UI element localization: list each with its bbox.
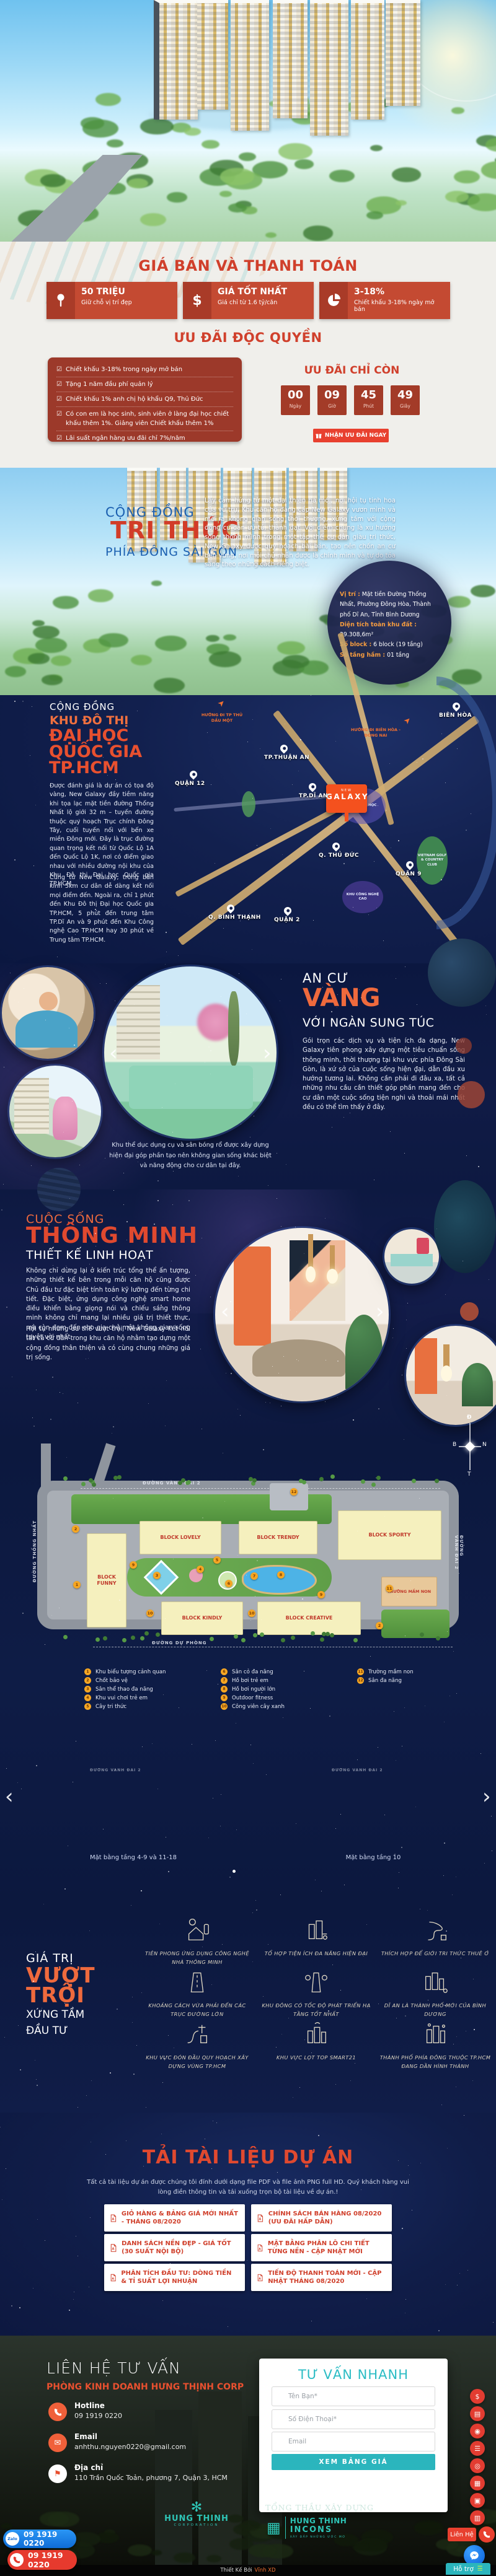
map-area: VIETNAM GOLF & COUNTRY CLUB xyxy=(417,836,448,885)
legend-item: 4Khu vui chơi trẻ em xyxy=(84,1694,148,1701)
legend-item: 3Sân thể thao đa năng xyxy=(84,1686,153,1693)
phone-icon xyxy=(483,2531,490,2538)
map-golf-patch xyxy=(242,791,255,817)
block-trendy: BLOCK TRENDY xyxy=(239,1521,317,1554)
location-paragraph-1: Được đánh giá là dự án có tọa độ vàng, N… xyxy=(50,782,154,889)
legend-number: 1 xyxy=(84,1668,91,1675)
road-label: ĐƯỜNG VÀNH ĐAI 2 xyxy=(454,1535,464,1572)
project-info-list: Vị trí : Mặt tiền Đường Thống Nhất, Phườ… xyxy=(340,590,443,660)
tower xyxy=(310,0,348,136)
legend-item: 11Trường mầm non xyxy=(357,1668,414,1675)
claim-offer-label: NHẬN ƯU ĐÃI NGAY xyxy=(325,432,386,439)
value-caption: TIÊN PHONG ỨNG DỤNG CÔNG NGHỆ NHÀ THÔNG … xyxy=(140,1949,254,1966)
highway-icon xyxy=(183,1968,211,1995)
plan-marker: 2 xyxy=(376,1622,383,1629)
check-icon: ☑ xyxy=(56,410,62,428)
email-input[interactable] xyxy=(272,2432,435,2451)
value-caption: TỔ HỢP TIỆN ÍCH ĐA NĂNG HIỆN ĐẠI xyxy=(259,1949,373,1958)
contact-float-button[interactable]: Liên Hệ xyxy=(448,2528,476,2541)
plan-marker: 9 xyxy=(130,1561,137,1569)
living-section: ‹ › AN CƯ VÀNG VỚI NGÀN SUNG TÚC Gói trọ… xyxy=(0,963,496,1189)
carousel-next-button[interactable]: › xyxy=(376,1302,384,1321)
plan-marker: 7 xyxy=(250,1572,258,1580)
legend-number: 7 xyxy=(221,1677,228,1684)
smart-heading-3: THIẾT KẾ LINH HOẠT xyxy=(26,1248,153,1262)
amenity-complex-icon xyxy=(302,1916,330,1943)
messenger-icon xyxy=(469,2550,480,2561)
block-creative: BLOCK CREATIVE xyxy=(257,1601,361,1635)
value-caption: KHU VỰC ĐÓN ĐẦU QUY HOẠCH XÂY DỰNG VÙNG … xyxy=(140,2053,254,2070)
svg-text:A: A xyxy=(259,2247,261,2251)
planet-decoration xyxy=(456,1038,472,1054)
email-label: Email xyxy=(74,2432,186,2441)
map-pin-icon xyxy=(308,782,318,792)
legend-label: Khu biểu tượng cảnh quan xyxy=(95,1669,166,1675)
legend-item: 12Sân đa năng xyxy=(357,1677,402,1684)
value-heading-2b: TRỘI xyxy=(26,1985,85,2007)
carousel-dot[interactable] xyxy=(232,1870,236,1873)
tower xyxy=(197,0,228,110)
info-value: 29.308,6m² xyxy=(340,631,373,638)
footer-author-link[interactable]: Vĩnh XD xyxy=(255,2567,276,2574)
svg-text:A: A xyxy=(259,2217,261,2221)
landing-page: GIÁ BÁN VÀ THANH TOÁN 50 TRIỆU Giữ chỗ v… xyxy=(0,0,496,2576)
document-download-button[interactable]: ACHÍNH SÁCH BÁN HÀNG 08/2020 (ƯU ĐÃI HẤP… xyxy=(251,2204,392,2232)
carousel-prev-button[interactable]: ‹ xyxy=(221,1302,229,1321)
hungthinh-incons-logo: ▦ HUNG THINH INCONS XÂY ĐẮP NHỮNG ƯỚC MƠ xyxy=(267,2517,347,2539)
planet-decoration xyxy=(434,1180,496,1273)
legend-label: Sân cỏ đa năng xyxy=(232,1669,273,1675)
map-marker: TP.THUẬN AN xyxy=(264,755,309,761)
legend-number: 5 xyxy=(84,1703,91,1710)
document-download-button[interactable]: ATIẾN ĐỘ THANH TOÁN MỚI - CẬP NHẬT THÁNG… xyxy=(251,2264,392,2291)
countdown-label: Giây xyxy=(391,403,420,409)
value-item: DĨ AN LÀ THÀNH PHỐ MỚI CỦA BÌNH DƯƠNG xyxy=(378,1968,492,2018)
address-value: 110 Trần Quốc Toản, phương 7, Quận 3, HC… xyxy=(74,2474,228,2482)
map-marker: BIÊN HÒA xyxy=(439,712,472,719)
footer-credit: Thiết Kế Bởi xyxy=(220,2567,252,2574)
document-label: GIỎ HÀNG & BẢNG GIÁ MỚI NHẤT - THÁNG 08/… xyxy=(122,2210,239,2227)
legend-number: 4 xyxy=(84,1694,91,1701)
check-icon: ☑ xyxy=(56,365,62,374)
plan-dashed-line xyxy=(93,1647,453,1647)
value-item: TỔ HỢP TIỆN ÍCH ĐA NĂNG HIỆN ĐẠI xyxy=(259,1916,373,1958)
card-title: 50 TRIỆU xyxy=(81,287,132,297)
floorplan-caption: Mặt bằng tầng 10 xyxy=(274,1854,472,1861)
amenity-photo-circle xyxy=(104,966,277,1139)
call-button[interactable]: 09 1919 0220 xyxy=(7,2550,77,2570)
pdf-icon: A xyxy=(110,2212,117,2224)
value-caption: DĨ AN LÀ THÀNH PHỐ MỚI CỦA BÌNH DƯƠNG xyxy=(378,2001,492,2018)
tower xyxy=(386,0,420,106)
plan-marker: 11 xyxy=(386,1585,393,1592)
road-label: ĐƯỜNG VÀNH ĐAI 2 xyxy=(143,1481,201,1486)
legend-number: 8 xyxy=(221,1686,228,1693)
legend-number: 2 xyxy=(84,1677,91,1684)
tower xyxy=(231,0,269,131)
legend-label: Outdoor fitness xyxy=(232,1695,273,1701)
map-direction: HƯỚNG ĐI TP THỦ DẦU MỘT xyxy=(196,712,248,724)
card-title: 3-18% xyxy=(354,287,444,297)
map-pin-icon xyxy=(279,743,290,754)
offer-item: Chiết khấu 3-18% trong ngày mở bán xyxy=(66,365,182,374)
info-value: 01 tầng xyxy=(387,652,409,659)
masterplan-map: ĐƯỜNG VÀNH ĐAI 2 ĐƯỜNG THỐNG NHẤT ĐƯỜNG … xyxy=(19,1450,477,1654)
legend-number: 6 xyxy=(221,1668,228,1675)
value-section: GIÁ TRỊ VƯỢT TRỘI XỨNG TẦM ĐẦU TƯ TIÊN P… xyxy=(0,1908,496,2113)
kitchen-photo-circle xyxy=(384,1229,439,1284)
offer-item: Lãi suất ngân hàng ưu đãi chỉ 7%/năm xyxy=(66,434,185,443)
hotline-value[interactable]: 09 1919 0220 xyxy=(74,2412,122,2420)
landscape-photo-circle xyxy=(9,1066,101,1157)
pricing-card: 50 TRIỆU Giữ chỗ vị trí đẹp xyxy=(46,282,177,319)
legend-label: Trường mầm non xyxy=(368,1669,414,1675)
countdown-label: Phút xyxy=(354,403,383,409)
block-sporty: BLOCK SPORTY xyxy=(338,1510,441,1560)
gift-icon xyxy=(316,432,322,439)
documents-section: TẢI TÀI LIỆU DỰ ÁN Tất cả tài liệu dự án… xyxy=(0,2113,496,2336)
logo-text: INCONS xyxy=(290,2525,347,2534)
phone-icon xyxy=(48,2403,67,2421)
price-icon[interactable]: $ xyxy=(470,2389,485,2404)
value-item: KHOẢNG CÁCH VỪA PHẢI ĐẾN CÁC TRỤC ĐƯỜNG … xyxy=(140,1968,254,2018)
countdown-days: 00 Ngày xyxy=(281,385,310,415)
smart-home-icon xyxy=(183,1916,211,1943)
road-label: ĐƯỜNG THỐNG NHẤT xyxy=(32,1520,37,1582)
road-label: ĐƯỜNG DỰ PHÒNG xyxy=(152,1641,207,1645)
interior-photo-circle xyxy=(215,1228,389,1401)
document-download-button[interactable]: ADANH SÁCH NỀN ĐẸP - GIÁ TỐT (30 SUẤT NỘ… xyxy=(104,2234,245,2261)
value-item: KHU ĐÔNG CÓ TỐC ĐỘ PHÁT TRIỂN HẠ TẦNG TỐ… xyxy=(259,1968,373,2018)
dining-photo-circle xyxy=(406,1326,496,1425)
plan-marker: 4 xyxy=(197,1566,204,1573)
logo-subtext: CORPORATION xyxy=(162,2523,231,2527)
offer-item: Chiết khấu 1% anh chị hộ khẩu Q9, Thủ Đứ… xyxy=(66,395,203,404)
pricing-title: GIÁ BÁN VÀ THANH TOÁN xyxy=(0,257,496,274)
family-photo-circle xyxy=(2,967,94,1059)
plan-plaza xyxy=(270,1483,308,1510)
map-pin-icon xyxy=(283,906,293,916)
new-city-icon xyxy=(421,1968,449,1995)
book-icon[interactable]: ▤ xyxy=(470,2406,485,2421)
form-title: TƯ VẤN NHANH xyxy=(259,2367,448,2382)
plan-marker: 10 xyxy=(146,1610,154,1617)
smart21-icon xyxy=(302,2020,330,2047)
plan-road xyxy=(41,1444,51,1487)
masterplan-section: Đ N B T ĐƯỜNG VÀNH ĐAI 2 ĐƯỜNG THỐNG NHẤ… xyxy=(0,1444,496,1908)
community-paragraph: Lấy cảm hứng từ một đại thiên hà mới, nơ… xyxy=(205,497,396,570)
pdf-icon: A xyxy=(257,2212,263,2224)
flower-logo-icon: ✻ xyxy=(162,2502,231,2514)
document-label: CHÍNH SÁCH BÁN HÀNG 08/2020 (ƯU ĐÃI HẤP … xyxy=(268,2210,386,2227)
svg-text:A: A xyxy=(112,2247,115,2251)
contact-title: LIÊN HỆ TƯ VẤN xyxy=(46,2359,181,2377)
location-icon[interactable]: ◉ xyxy=(470,2424,485,2438)
phone-float-button[interactable] xyxy=(479,2526,495,2543)
map-marker: Q. THỦ ĐỨC xyxy=(319,852,359,859)
pdf-icon: A xyxy=(257,2272,263,2284)
value-item: KHU VỰC LỌT TOP SMART21 xyxy=(259,2020,373,2062)
compass-letter: N xyxy=(482,1442,487,1448)
map-pin-icon xyxy=(405,860,415,870)
address-label: Địa chỉ xyxy=(74,2463,228,2472)
value-caption: KHOẢNG CÁCH VỪA PHẢI ĐẾN CÁC TRỤC ĐƯỜNG … xyxy=(140,2001,254,2018)
map-pin-icon xyxy=(331,841,342,852)
svg-text:A: A xyxy=(112,2277,114,2280)
value-item: THÍCH HỢP ĐỂ GIỚI TRI THỨC THUÊ Ở xyxy=(378,1916,492,1958)
check-icon: ☑ xyxy=(56,434,62,443)
legend-item: 2Chốt bảo vệ xyxy=(84,1677,128,1684)
planet-decoration xyxy=(428,939,496,1007)
plan-marker: 1 xyxy=(73,1581,81,1588)
location-section: CỘNG ĐỒNG KHU ĐÔ THỊ ĐẠI HỌC QUỐC GIA TP… xyxy=(0,695,496,963)
countdown-value: 09 xyxy=(317,388,347,401)
map-pin-icon xyxy=(46,282,75,319)
smart-paragraph-2: Hội tụ những ưu thế vượt trội, New Galax… xyxy=(26,1325,190,1362)
map-area: KHU CÔNG NGHỆ CAO xyxy=(342,881,383,913)
legend-item: 9Outdoor fitness xyxy=(221,1694,273,1701)
legend-label: Cây tri thức xyxy=(95,1704,126,1710)
hungthinh-corp-logo: ✻ HUNG THINH CORPORATION xyxy=(162,2502,231,2527)
map-marker: QUẬN 12 xyxy=(175,781,205,787)
envelope-icon: ✉ xyxy=(48,2434,67,2452)
value-caption: KHU ĐÔNG CÓ TỐC ĐỘ PHÁT TRIỂN HẠ TẦNG TỐ… xyxy=(259,2001,373,2018)
document-download-button[interactable]: AGIỎ HÀNG & BẢNG GIÁ MỚI NHẤT - THÁNG 08… xyxy=(104,2204,245,2232)
plan-marker: 3 xyxy=(153,1572,161,1579)
plan-park xyxy=(381,1610,449,1638)
location-heading-3b: QUỐC GIA xyxy=(49,743,142,760)
planet-decoration xyxy=(458,1081,485,1108)
smart-heading-2: THÔNG MINH xyxy=(26,1225,198,1248)
menu-icon: ☰ xyxy=(477,2565,483,2572)
zalo-phone: 09 1919 0220 xyxy=(24,2530,76,2548)
brand-name: GALAXY xyxy=(326,792,367,801)
documents-subtitle: Tất cả tài liệu dự án được chúng tôi đín… xyxy=(87,2178,409,2197)
logo-text: HUNG THINH xyxy=(290,2517,347,2525)
quick-consult-form: TƯ VẤN NHANH 👤 ▯ ✉ XEM BẢNG GIÁ xyxy=(259,2359,448,2512)
floorplan-caption: Mặt bằng tầng 4-9 và 11-18 xyxy=(34,1854,232,1861)
location-paragraph-2: Cũng từ New Galaxy, trong bán kính 5km c… xyxy=(50,874,154,945)
plan-pool xyxy=(242,1565,317,1595)
direction-arrow-icon: ➤ xyxy=(216,698,227,709)
plan-marker: 6 xyxy=(225,1580,232,1587)
card-subtitle: Chiết khấu 3-18% ngày mở bán xyxy=(354,299,444,313)
support-button[interactable]: Hỗ trợ ☰ xyxy=(446,2563,490,2575)
plan-marker: 9 xyxy=(317,1591,325,1598)
logo-tagline: XÂY ĐẮP NHỮNG ƯỚC MƠ xyxy=(290,2536,347,2539)
svg-text:A: A xyxy=(259,2277,261,2280)
plan-dashed-line xyxy=(81,1488,440,1489)
view-price-button[interactable]: XEM BẢNG GIÁ xyxy=(272,2454,435,2470)
value-item: TIÊN PHONG ỨNG DỤNG CÔNG NGHỆ NHÀ THÔNG … xyxy=(140,1916,254,1966)
smart-section: CUỘC SỐNG THÔNG MINH THIẾT KẾ LINH HOẠT … xyxy=(0,1189,496,1444)
map-pin-icon xyxy=(188,769,199,780)
legend-label: Khu vui chơi trẻ em xyxy=(95,1695,148,1701)
planning-icon xyxy=(183,2020,211,2047)
offer-item: Tặng 1 năm đầu phí quản lý xyxy=(66,380,153,389)
check-icon: ☑ xyxy=(56,395,62,404)
countdown-label: Ngày xyxy=(281,403,310,409)
pricing-card: 3-18% Chiết khấu 3-18% ngày mở bán xyxy=(319,282,450,319)
map-marker: QUẬN 9 xyxy=(396,871,422,877)
block-lovely: BLOCK LOVELY xyxy=(139,1521,221,1554)
living-heading-2: VÀNG xyxy=(303,984,381,1012)
carousel-prev-button[interactable]: ‹ xyxy=(109,1044,118,1062)
value-item: KHU VỰC ĐÓN ĐẦU QUY HOẠCH XÂY DỰNG VÙNG … xyxy=(140,2020,254,2070)
living-heading-3: VỚI NGÀN SUNG TÚC xyxy=(303,1016,434,1030)
map-river xyxy=(372,677,496,929)
legend-item: 8Hồ bơi người lớn xyxy=(221,1686,275,1693)
legend-number: 9 xyxy=(221,1694,228,1701)
infrastructure-icon xyxy=(302,1968,330,1995)
hero-banner xyxy=(0,0,496,242)
phone-input[interactable] xyxy=(272,2409,435,2429)
legend-number: 12 xyxy=(357,1677,364,1684)
planet-decoration xyxy=(37,1168,81,1211)
value-caption: THÀNH PHỐ PHÍA ĐÔNG THUỘC TP.HCM ĐANG DẦ… xyxy=(378,2053,492,2070)
map-icon[interactable]: ▦ xyxy=(470,2476,485,2491)
view-icon[interactable]: ◎ xyxy=(470,2458,485,2473)
tower xyxy=(154,0,198,120)
pdf-icon: A xyxy=(110,2272,116,2284)
rental-road-icon xyxy=(421,1916,449,1943)
zalo-icon: Zalo xyxy=(6,2532,19,2546)
legend-item: 7Hồ bơi trẻ em xyxy=(221,1677,268,1684)
card-title: GIÁ TỐT NHẤT xyxy=(218,287,287,297)
dollar-icon: $ xyxy=(183,282,211,319)
east-city-icon xyxy=(421,2020,449,2047)
block-kindly: BLOCK KINDLY xyxy=(161,1601,243,1635)
gallery-icon[interactable]: ▣ xyxy=(470,2493,485,2508)
legend-label: Sân đa năng xyxy=(368,1678,402,1684)
countdown-hours: 09 Giờ xyxy=(317,385,347,415)
document-label: TIẾN ĐỘ THANH TOÁN MỚI - CẬP NHẬT THÁNG … xyxy=(268,2269,386,2286)
hotline-label: Hotline xyxy=(74,2401,122,2410)
legend-item: 6Sân cỏ đa năng xyxy=(221,1668,273,1675)
direction-arrow-icon: ➤ xyxy=(402,715,413,726)
new-galaxy-map-logo: NEW GALAXY xyxy=(326,784,367,813)
legend-item: 1Khu biểu tượng cảnh quan xyxy=(84,1668,166,1675)
offer-item: Có con em là học sinh, sinh viên ở làng … xyxy=(66,410,233,428)
builder-label: TỔNG THẦU XÂY DỰNG xyxy=(265,2503,374,2512)
document-icon[interactable]: ▥ xyxy=(470,2510,485,2525)
offers-list: ☑Chiết khấu 3-18% trong ngày mở bán ☑Tặn… xyxy=(48,357,242,442)
legend-number: 10 xyxy=(221,1703,228,1710)
list-icon[interactable]: ☰ xyxy=(470,2441,485,2456)
tower xyxy=(273,0,308,118)
check-icon: ☑ xyxy=(56,380,62,389)
location-heading-3c: TP.HCM xyxy=(49,760,119,776)
living-paragraph: Gói trọn các dịch vụ và tiện ích đa dạng… xyxy=(303,1036,465,1112)
tower xyxy=(351,0,384,120)
address-icon: ⚑ xyxy=(48,2464,67,2483)
svg-text:A: A xyxy=(112,2217,114,2221)
contact-company: PHÒNG KINH DOANH HƯNG THỊNH CORP xyxy=(46,2382,244,2392)
location-heading-3a: ĐẠI HỌC xyxy=(49,727,128,744)
info-label: Diện tích toàn khu đất : xyxy=(340,621,417,628)
floorplan-prev-button[interactable]: ‹ xyxy=(5,1787,14,1806)
plan-marker: 2 xyxy=(72,1525,79,1533)
legend-label: Hồ bơi người lớn xyxy=(232,1686,275,1693)
countdown-label: Giờ xyxy=(317,403,347,409)
compass-letter: Đ xyxy=(467,1414,472,1421)
countdown-value: 45 xyxy=(354,388,383,401)
plan-marker: 12 xyxy=(290,1488,298,1496)
zalo-button[interactable]: Zalo 09 1919 0220 xyxy=(3,2530,76,2548)
plan-marker: 10 xyxy=(248,1610,255,1617)
map-direction: HƯỚNG ĐI BIÊN HÒA - ĐỒNG NAI xyxy=(346,727,405,738)
map-marker: Q. BÌNH THẠNH xyxy=(208,914,261,921)
document-label: PHÂN TÍCH ĐẦU TƯ: DÒNG TIỀN & TỈ SUẤT LỢ… xyxy=(121,2269,239,2286)
plan-marker: 8 xyxy=(277,1571,285,1579)
pdf-icon: A xyxy=(257,2242,263,2254)
support-label: Hỗ trợ xyxy=(453,2565,474,2573)
compass-letter: B xyxy=(453,1442,456,1448)
document-label: DANH SÁCH NỀN ĐẸP - GIÁ TỐT (30 SUẤT NỘI… xyxy=(122,2240,239,2256)
legend-label: Sân thể thao đa năng xyxy=(95,1686,153,1693)
document-download-button[interactable]: APHÂN TÍCH ĐẦU TƯ: DÒNG TIỀN & TỈ SUẤT L… xyxy=(104,2264,245,2291)
info-value: 6 block (19 tầng) xyxy=(373,641,423,648)
value-caption: KHU VỰC LỌT TOP SMART21 xyxy=(259,2053,373,2062)
grid-logo-icon: ▦ xyxy=(267,2519,281,2536)
road-label: ĐƯỜNG VÀNH ĐAI 2 xyxy=(332,1768,383,1772)
block-funny: BLOCK FUNNY xyxy=(87,1533,126,1628)
carousel-next-button[interactable]: › xyxy=(263,1044,272,1062)
map-marker: TP.DĨ AN xyxy=(299,793,328,799)
value-caption: THÍCH HỢP ĐỂ GIỚI TRI THỨC THUÊ Ở xyxy=(378,1949,492,1958)
card-subtitle: Giữ chỗ vị trí đẹp xyxy=(81,299,132,306)
floorplan-next-button[interactable]: › xyxy=(482,1787,491,1806)
location-heading-2: KHU ĐÔ THỊ xyxy=(50,714,128,727)
value-heading-3: XỨNG TẦM ĐẦU TƯ xyxy=(26,2007,107,2039)
countdown-minutes: 45 Phút xyxy=(354,385,383,415)
map-marker: QUẬN 2 xyxy=(274,917,300,923)
legend-item: 10Công viên cây xanh xyxy=(221,1703,285,1710)
legend-label: Hồ bơi trẻ em xyxy=(232,1678,268,1684)
living-caption: Khu thể dục dụng cụ và sân bóng rổ được … xyxy=(107,1141,274,1172)
offers-title: ƯU ĐÃI ĐỘC QUYỀN xyxy=(0,330,496,345)
pie-chart-icon xyxy=(319,282,348,319)
claim-offer-button[interactable]: NHẬN ƯU ĐÃI NGAY xyxy=(313,429,389,442)
location-heading-1: CỘNG ĐỒNG xyxy=(50,701,115,712)
countdown-seconds: 49 Giây xyxy=(391,385,420,415)
legend-number: 3 xyxy=(84,1686,91,1693)
countdown-title: ƯU ĐÃI CHỈ CÒN xyxy=(282,364,422,377)
info-label: Vị trí : xyxy=(340,591,360,598)
legend-number: 11 xyxy=(357,1668,364,1675)
document-label: MẶT BẰNG PHÂN LÔ CHI TIẾT TỪNG NỀN - CẬP… xyxy=(268,2240,386,2256)
countdown-value: 00 xyxy=(281,388,310,401)
countdown-value: 49 xyxy=(391,388,420,401)
pdf-icon: A xyxy=(110,2242,117,2254)
card-subtitle: Giá chỉ từ 1.6 tỷ/căn xyxy=(218,299,287,306)
email-value[interactable]: anhthu.nguyen0220@gmail.com xyxy=(74,2443,186,2451)
document-download-button[interactable]: AMẶT BẰNG PHÂN LÔ CHI TIẾT TỪNG NỀN - CẬ… xyxy=(251,2234,392,2261)
call-phone: 09 1919 0220 xyxy=(28,2551,77,2569)
legend-label: Công viên cây xanh xyxy=(232,1704,285,1710)
phone-icon xyxy=(10,2553,24,2567)
legend-label: Chốt bảo vệ xyxy=(95,1678,128,1684)
documents-title: TẢI TÀI LIỆU DỰ ÁN xyxy=(0,2147,496,2168)
logo-text: HUNG THINH xyxy=(162,2514,231,2523)
value-item: THÀNH PHỐ PHÍA ĐÔNG THUỘC TP.HCM ĐANG DẦ… xyxy=(378,2020,492,2070)
planet-decoration xyxy=(460,1302,479,1321)
pricing-card: $ GIÁ TỐT NHẤT Giá chỉ từ 1.6 tỷ/căn xyxy=(183,282,314,319)
name-input[interactable] xyxy=(272,2386,435,2406)
legend-item: 5Cây tri thức xyxy=(84,1703,126,1710)
